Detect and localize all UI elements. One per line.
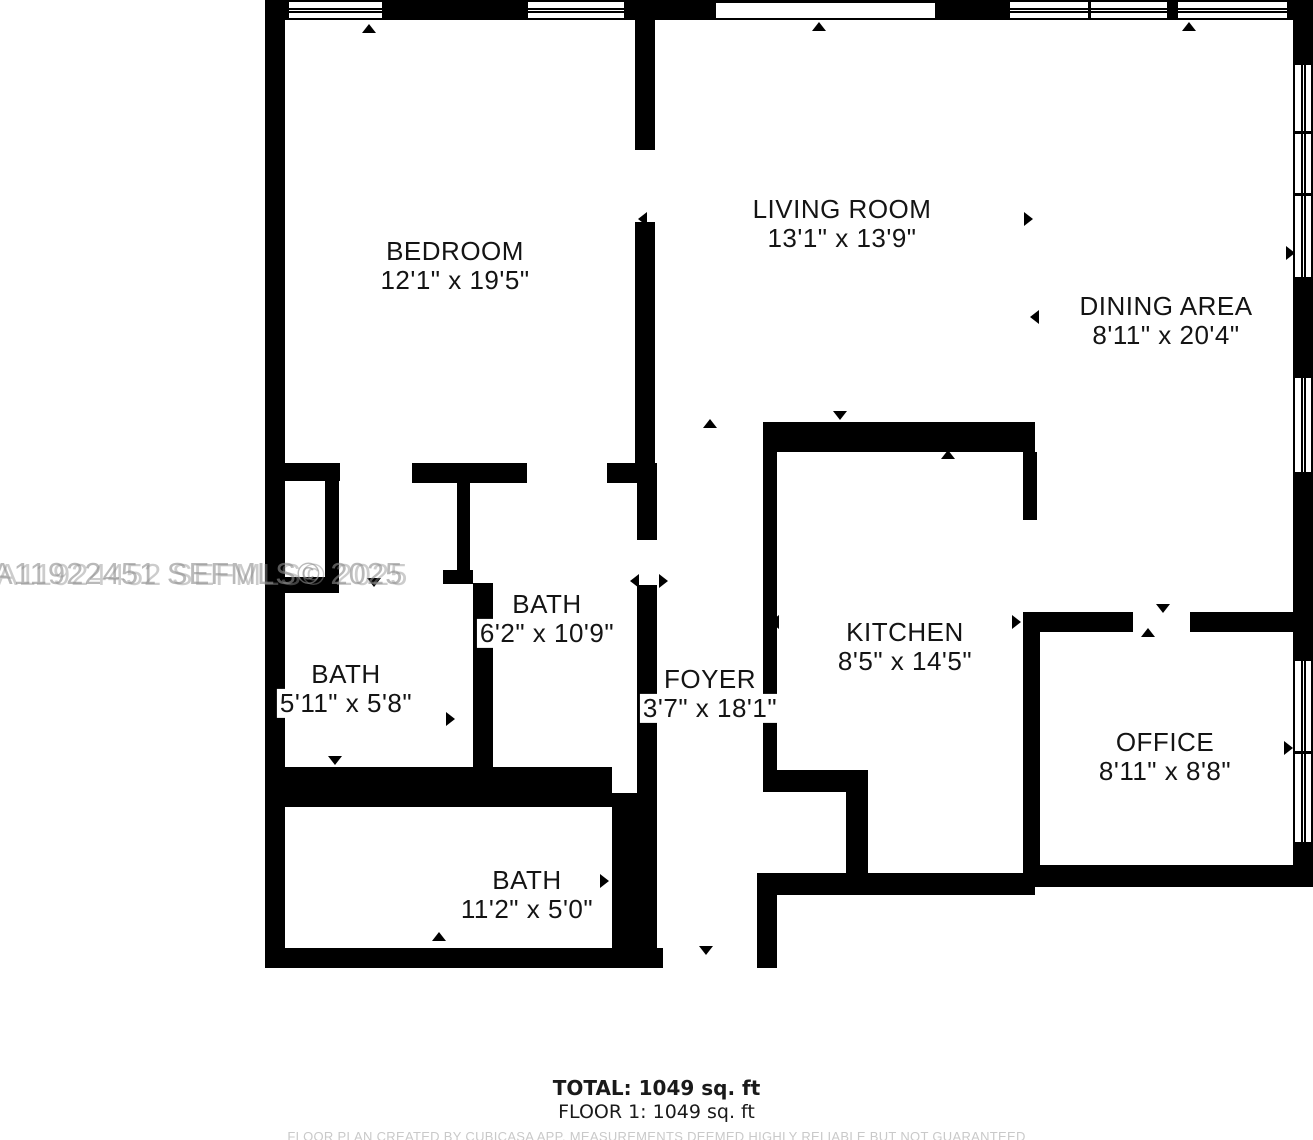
room-label-bath-bottom: BATH 11'2" x 5'0" [458,866,596,924]
room-name: LIVING ROOM [750,195,935,224]
room-dims: 5'11" x 5'8" [277,689,415,718]
window-mullion [1295,193,1311,196]
floor1-area-text: FLOOR 1: 1049 sq. ft [0,1101,1313,1123]
wall-segment [457,483,470,583]
door-swing-arrow [266,870,275,884]
door-swing-arrow [659,574,668,588]
floor-plan-page: BEDROOM 12'1" x 19'5" LIVING ROOM 13'1" … [0,0,1313,1140]
wall-segment [763,422,1035,452]
door-swing-arrow [432,932,446,941]
wall-segment [265,463,340,481]
room-name: BATH [489,866,564,895]
room-dims: 3'7" x 18'1" [640,694,780,723]
door-swing-arrow [703,419,717,428]
balcony-opening [716,0,935,20]
room-dims: 8'11" x 20'4" [1089,321,1242,350]
door-swing-arrow [770,615,779,629]
wall-segment [1293,280,1313,375]
window-glazing-line [1301,65,1303,277]
window-glazing-line [528,8,624,10]
door-swing-arrow [630,574,639,588]
wall-segment [635,222,655,463]
door-swing-arrow [941,450,955,459]
room-dims: 8'5" x 14'5" [835,647,975,676]
wall-segment [612,793,657,953]
door-swing-arrow [1012,615,1021,629]
room-label-dining: DINING AREA 8'11" x 20'4" [1076,292,1255,350]
room-dims: 8'11" x 8'8" [1096,757,1234,786]
door-swing-arrow [1030,310,1039,324]
room-dims: 13'1" x 13'9" [764,224,919,253]
door-swing-arrow [1182,22,1196,31]
door-swing-arrow [1284,741,1293,755]
door-swing-arrow [1024,212,1033,226]
wall-segment [635,20,655,150]
window-glazing-line [1178,8,1287,10]
wall-segment [1035,865,1313,887]
wall-segment [1023,632,1040,875]
room-dims: 11'2" x 5'0" [458,895,596,924]
mls-watermark: A11924452 SEFMLS© 2025 A11922451 SEFMLS©… [0,556,332,592]
room-name: BEDROOM [383,237,527,266]
room-name: BATH [509,590,584,619]
room-name: KITCHEN [843,618,967,647]
wall-segment [637,463,657,540]
window-mullion [1088,2,1091,18]
door-swing-arrow [600,874,609,888]
room-label-bedroom: BEDROOM 12'1" x 19'5" [377,237,532,295]
door-swing-arrow [362,24,376,33]
room-name: DINING AREA [1076,292,1255,321]
wall-segment [757,873,1035,895]
window [1293,375,1313,475]
room-label-living: LIVING ROOM 13'1" x 13'9" [750,195,935,253]
window-mullion [1295,751,1311,754]
window-glazing-line [1178,11,1287,13]
door-swing-arrow [1286,246,1295,260]
window-glazing-line [1304,378,1306,472]
window-glazing-line [289,8,382,10]
wall-segment [265,948,663,968]
wall-segment [1023,452,1037,520]
wall-segment [1023,612,1040,632]
door-swing-arrow [833,411,847,420]
door-swing-arrow [266,712,275,726]
wall-segment [265,0,285,968]
window-glazing-line [289,11,382,13]
window [1007,0,1170,20]
room-label-foyer: FOYER 3'7" x 18'1" [640,665,780,723]
wall-segment [1293,475,1313,658]
room-name: OFFICE [1113,728,1217,757]
wall-segment [265,767,612,807]
area-summary: TOTAL: 1049 sq. ft FLOOR 1: 1049 sq. ft [0,1076,1313,1123]
wall-segment [1190,612,1293,632]
door-swing-arrow [638,212,647,226]
mls-watermark-text: A11922451 SEFMLS© 2025 [0,556,403,592]
room-label-kitchen: KITCHEN 8'5" x 14'5" [835,618,975,676]
room-label-bath-left: BATH 5'11" x 5'8" [277,660,415,718]
window [1293,658,1313,845]
room-name: FOYER [661,665,759,694]
room-dims: 12'1" x 19'5" [377,266,532,295]
disclaimer-text: FLOOR PLAN CREATED BY CUBICASA APP. MEAS… [0,1129,1313,1140]
wall-segment [443,570,473,584]
window [525,0,627,20]
room-dims: 6'2" x 10'9" [477,619,617,648]
window [1293,62,1313,280]
door-swing-arrow [812,22,826,31]
room-name: BATH [308,660,383,689]
room-label-bath-mid: BATH 6'2" x 10'9" [477,590,617,648]
total-area-text: TOTAL: 1049 sq. ft [0,1076,1313,1100]
wall-segment [1040,612,1133,632]
window [1175,0,1290,20]
door-swing-arrow [328,756,342,765]
room-label-office: OFFICE 8'11" x 8'8" [1096,728,1234,786]
wall-segment [1293,0,1313,62]
window-mullion [1295,131,1311,134]
window-glazing-line [1304,65,1306,277]
door-swing-arrow [501,470,515,479]
window-glazing-line [1301,378,1303,472]
door-swing-arrow [699,946,713,955]
window [286,0,385,20]
door-swing-arrow [1141,628,1155,637]
door-swing-arrow [1156,604,1170,613]
window-glazing-line [528,11,624,13]
door-swing-arrow [446,712,455,726]
